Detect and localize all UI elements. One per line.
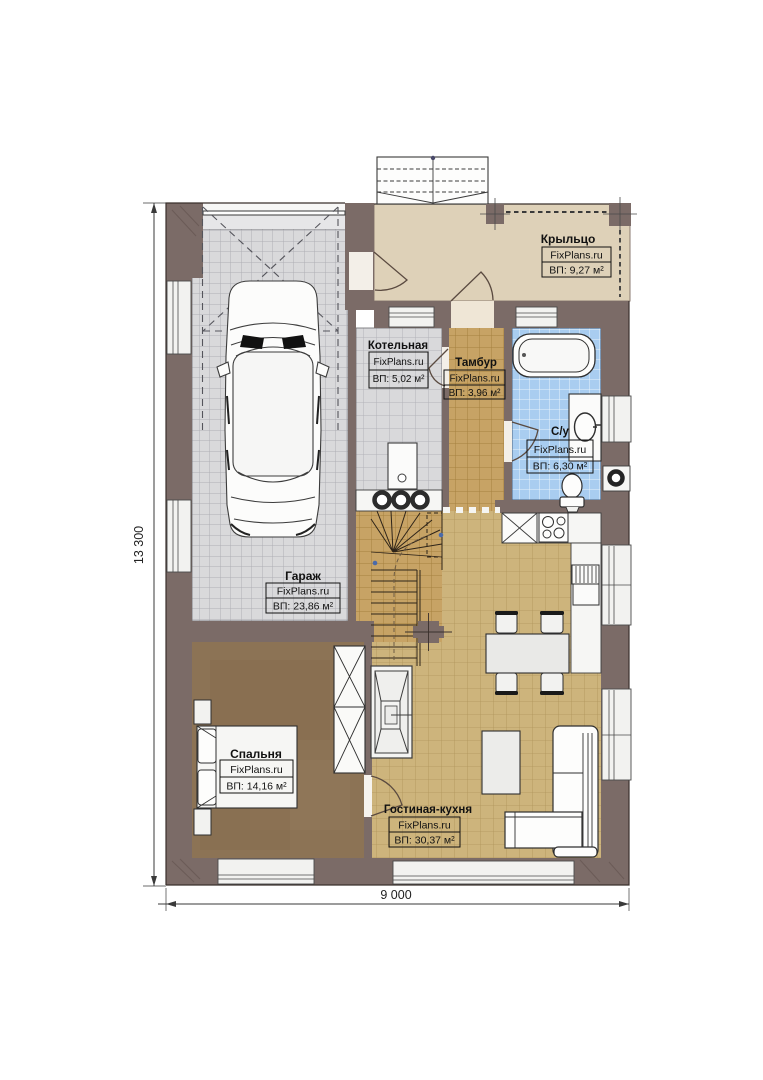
- svg-text:FixPlans.ru: FixPlans.ru: [373, 357, 423, 368]
- svg-text:Крыльцо: Крыльцо: [541, 232, 596, 246]
- svg-text:ВП: 5,02 м²: ВП: 5,02 м²: [373, 374, 426, 385]
- svg-text:Котельная: Котельная: [368, 340, 428, 352]
- svg-text:С/у: С/у: [551, 426, 570, 438]
- svg-text:Гараж: Гараж: [285, 569, 321, 583]
- svg-text:ВП: 14,16 м²: ВП: 14,16 м²: [226, 781, 287, 793]
- svg-text:FixPlans.ru: FixPlans.ru: [449, 374, 499, 385]
- svg-text:Гостиная-кухня: Гостиная-кухня: [384, 804, 472, 816]
- svg-text:9 000: 9 000: [380, 888, 411, 902]
- svg-text:ВП: 30,37 м²: ВП: 30,37 м²: [394, 835, 455, 847]
- svg-text:Спальня: Спальня: [230, 747, 282, 761]
- svg-text:FixPlans.ru: FixPlans.ru: [534, 444, 587, 456]
- svg-text:ВП: 3,96 м²: ВП: 3,96 м²: [449, 388, 502, 399]
- svg-text:Тамбур: Тамбур: [455, 357, 497, 369]
- svg-text:FixPlans.ru: FixPlans.ru: [230, 764, 283, 776]
- svg-text:FixPlans.ru: FixPlans.ru: [277, 586, 330, 598]
- svg-text:ВП: 23,86 м²: ВП: 23,86 м²: [273, 601, 334, 613]
- svg-text:FixPlans.ru: FixPlans.ru: [398, 820, 451, 832]
- svg-text:ВП: 9,27 м²: ВП: 9,27 м²: [549, 265, 604, 277]
- svg-text:ВП: 6,30 м²: ВП: 6,30 м²: [533, 461, 588, 473]
- svg-text:13 300: 13 300: [132, 526, 146, 564]
- svg-text:FixPlans.ru: FixPlans.ru: [550, 250, 603, 262]
